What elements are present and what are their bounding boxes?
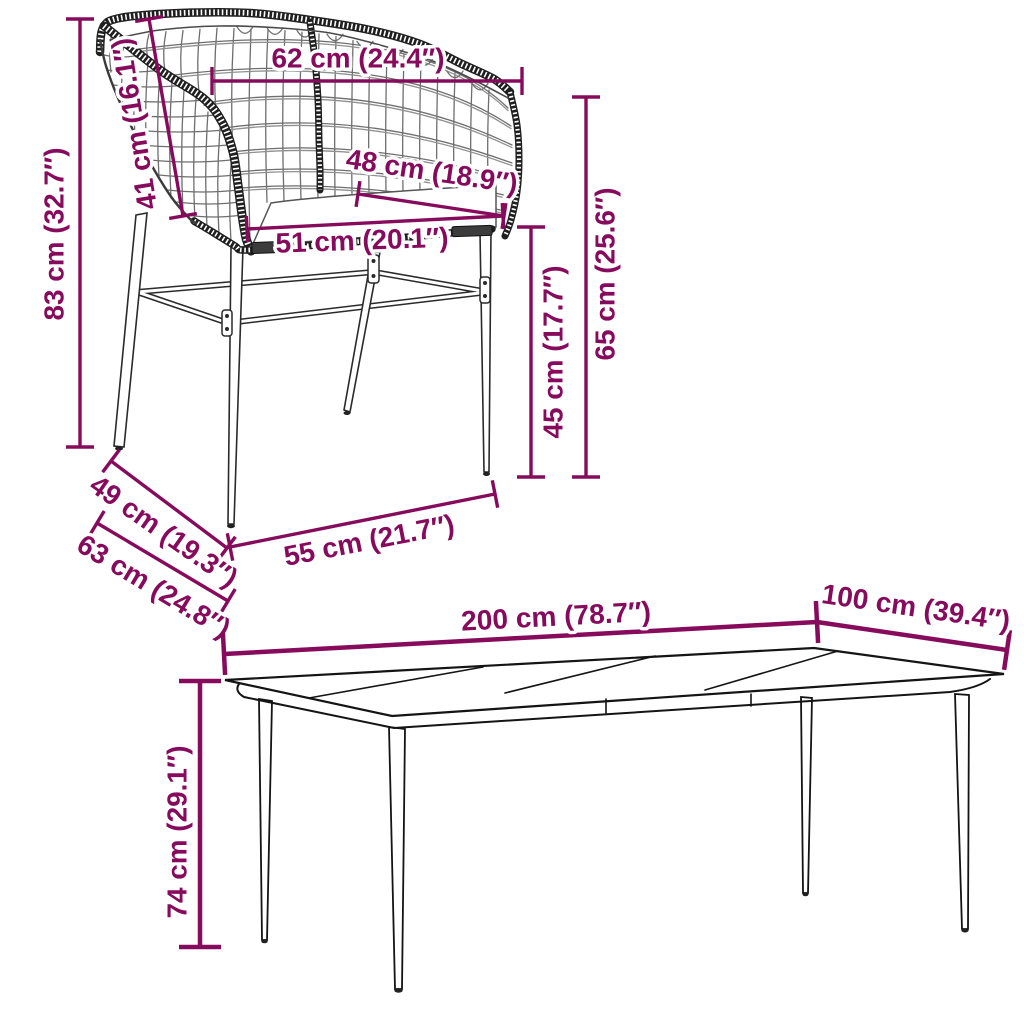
svg-text:45 cm (17.7″): 45 cm (17.7″): [538, 266, 569, 439]
svg-text:62 cm (24.4″): 62 cm (24.4″): [272, 43, 445, 74]
svg-text:51 cm (20.1″): 51 cm (20.1″): [275, 222, 449, 259]
svg-text:83 cm (32.7″): 83 cm (32.7″): [39, 148, 70, 321]
svg-text:74 cm (29.1″): 74 cm (29.1″): [162, 746, 193, 919]
svg-text:65 cm (25.6″): 65 cm (25.6″): [590, 188, 621, 361]
